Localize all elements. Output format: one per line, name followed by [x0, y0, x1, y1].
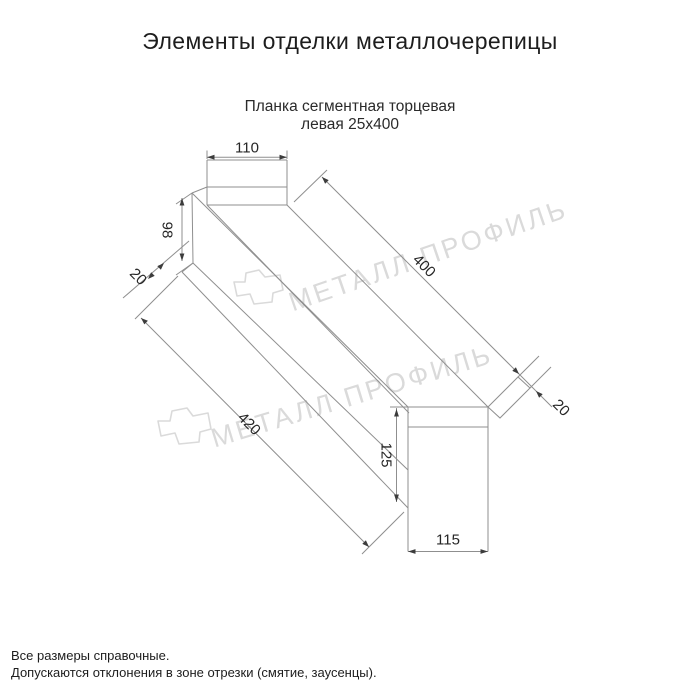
logo-cloud-icon — [158, 270, 283, 444]
dim-label-right-width: 115 — [436, 532, 460, 549]
dim-label-left-height: 98 — [159, 222, 176, 239]
drawing-page: Элементы отделки металлочерепицы Планка … — [0, 0, 700, 700]
part-outline — [182, 160, 530, 552]
technical-drawing-canvas — [0, 0, 700, 700]
dimension-arrows — [141, 155, 543, 554]
dim-label-top-width: 110 — [235, 140, 259, 157]
dim-label-right-height: 125 — [378, 442, 395, 467]
